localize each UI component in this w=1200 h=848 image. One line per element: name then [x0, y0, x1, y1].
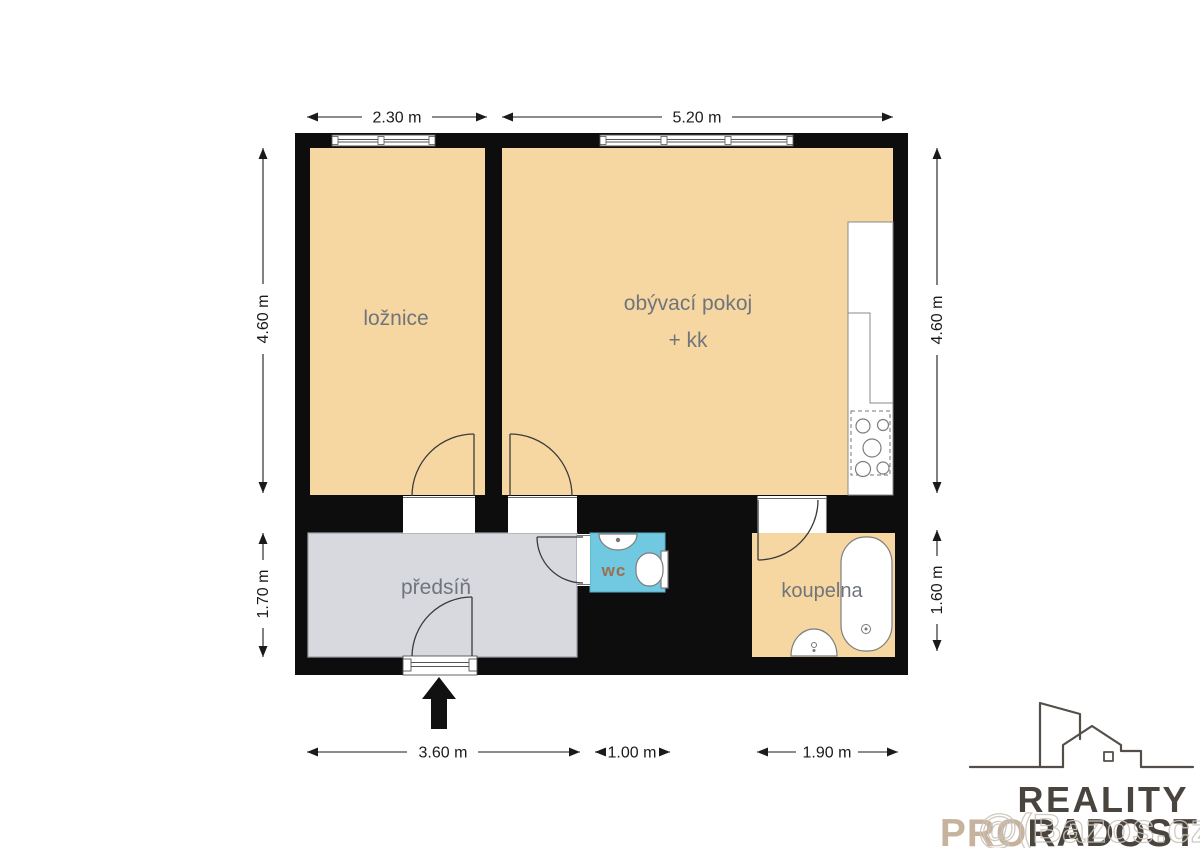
bedroom-window-icon [332, 135, 435, 146]
svg-text:2.30 m: 2.30 m [373, 110, 422, 127]
agency-logo: REALITY PRORADOST @(Bazos.cz [940, 703, 1200, 848]
room-living [502, 148, 893, 495]
svg-text:1.70 m: 1.70 m [255, 570, 272, 619]
svg-text:1.00 m: 1.00 m [608, 745, 657, 762]
living-room-sublabel: + kk [668, 329, 708, 352]
svg-text:4.60 m: 4.60 m [929, 296, 946, 345]
watermark: @(Bazos.cz [978, 807, 1200, 848]
hall-label: předsíň [401, 576, 471, 599]
buildings-skyline-icon [970, 703, 1193, 767]
dimension-right-upper: 4.60 m [929, 148, 946, 493]
bathroom-label: koupelna [781, 580, 863, 602]
wc-label: wc [601, 561, 627, 580]
dimension-bottom-wc: 1.00 m [595, 745, 670, 762]
dimension-left-upper: 4.60 m [255, 148, 272, 493]
dimension-left-lower: 1.70 m [255, 533, 272, 657]
toilet-icon [636, 551, 668, 588]
bedroom-label: ložnice [363, 307, 428, 330]
svg-text:4.60 m: 4.60 m [255, 295, 272, 344]
svg-text:3.60 m: 3.60 m [419, 745, 468, 762]
svg-text:1.90 m: 1.90 m [803, 745, 852, 762]
floor-plan: ložnice obývací pokoj + kk předsíň wc ko… [0, 0, 1200, 848]
entrance-arrow-icon [422, 677, 456, 729]
living-room-label: obývací pokoj [624, 292, 752, 315]
dimension-right-lower: 1.60 m [929, 530, 946, 651]
dimension-top-living: 5.20 m [502, 110, 893, 127]
dimension-bottom-bathroom: 1.90 m [757, 745, 898, 762]
dimension-top-bedroom: 2.30 m [307, 110, 487, 127]
svg-text:1.60 m: 1.60 m [929, 566, 946, 615]
svg-text:5.20 m: 5.20 m [673, 110, 722, 127]
living-room-window-icon [600, 135, 793, 146]
dimension-bottom-hall: 3.60 m [307, 745, 580, 762]
